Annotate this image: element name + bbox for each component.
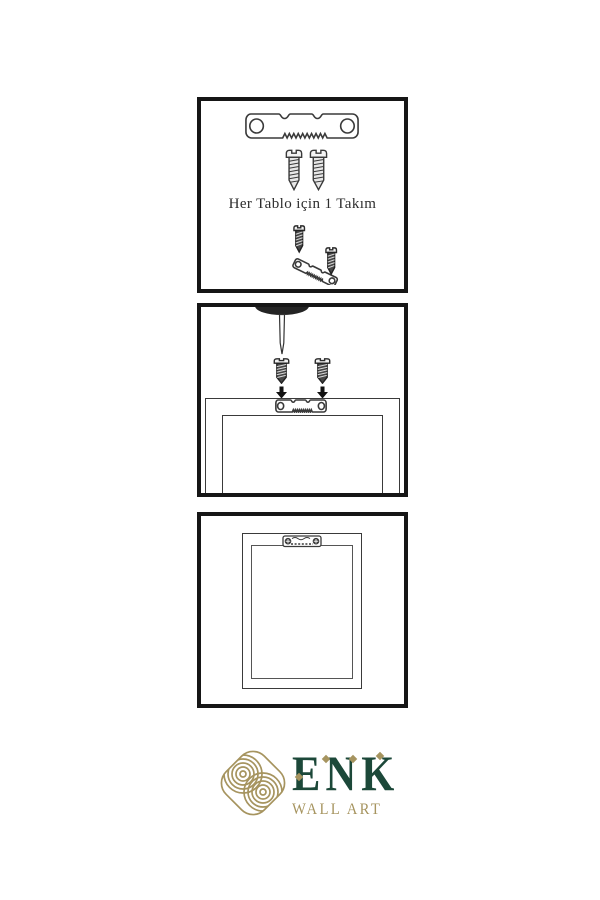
screw-icon xyxy=(273,358,290,384)
screw-icon xyxy=(309,149,328,191)
mounted-hanger-icon xyxy=(282,535,322,548)
panel-hardware-kit: Her Tablo için 1 Takım xyxy=(197,97,408,293)
panel-mounted-frame xyxy=(197,512,408,708)
instruction-sheet: Her Tablo için 1 Takım xyxy=(0,0,600,900)
frame-inner-outline xyxy=(222,415,383,493)
brand-wordmark: ENK WALL ART xyxy=(292,748,408,819)
frame-inner-outline xyxy=(251,545,353,679)
screw-icon xyxy=(285,149,303,191)
brand-tagline: WALL ART xyxy=(292,801,399,819)
panel-installation-step xyxy=(197,303,408,497)
kit-caption: Her Tablo için 1 Takım xyxy=(201,196,404,213)
sawtooth-hanger-icon xyxy=(244,112,360,140)
knot-logo-icon xyxy=(219,746,287,820)
screw-icon xyxy=(314,358,331,384)
sawtooth-hanger-icon xyxy=(275,399,327,413)
hanger-assembly-icon xyxy=(286,221,358,285)
screwdriver-icon xyxy=(254,306,310,356)
